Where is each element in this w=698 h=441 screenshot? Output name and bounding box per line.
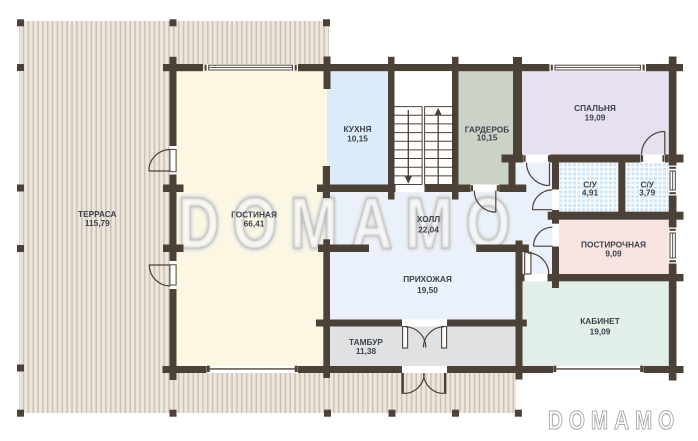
- svg-text:DOMAMO: DOMAMO: [548, 406, 680, 435]
- svg-text:ПРИХОЖАЯ: ПРИХОЖАЯ: [403, 274, 452, 284]
- svg-text:3,79: 3,79: [639, 188, 656, 198]
- svg-text:115,79: 115,79: [85, 218, 110, 228]
- svg-text:19,50: 19,50: [417, 285, 438, 295]
- svg-text:10,15: 10,15: [347, 134, 368, 144]
- svg-text:66,41: 66,41: [244, 218, 265, 228]
- svg-text:4,91: 4,91: [582, 188, 599, 198]
- svg-text:22,04: 22,04: [418, 225, 439, 235]
- svg-text:11,38: 11,38: [356, 346, 377, 356]
- svg-text:19,09: 19,09: [590, 327, 611, 337]
- svg-text:9,09: 9,09: [605, 249, 622, 259]
- svg-text:ХОЛЛ: ХОЛЛ: [417, 214, 440, 224]
- svg-text:19,09: 19,09: [585, 113, 606, 123]
- svg-text:СПАЛЬНЯ: СПАЛЬНЯ: [574, 103, 616, 113]
- svg-text:10,15: 10,15: [477, 133, 498, 143]
- svg-text:КУХНЯ: КУХНЯ: [344, 124, 372, 134]
- svg-text:КАБИНЕТ: КАБИНЕТ: [580, 316, 620, 326]
